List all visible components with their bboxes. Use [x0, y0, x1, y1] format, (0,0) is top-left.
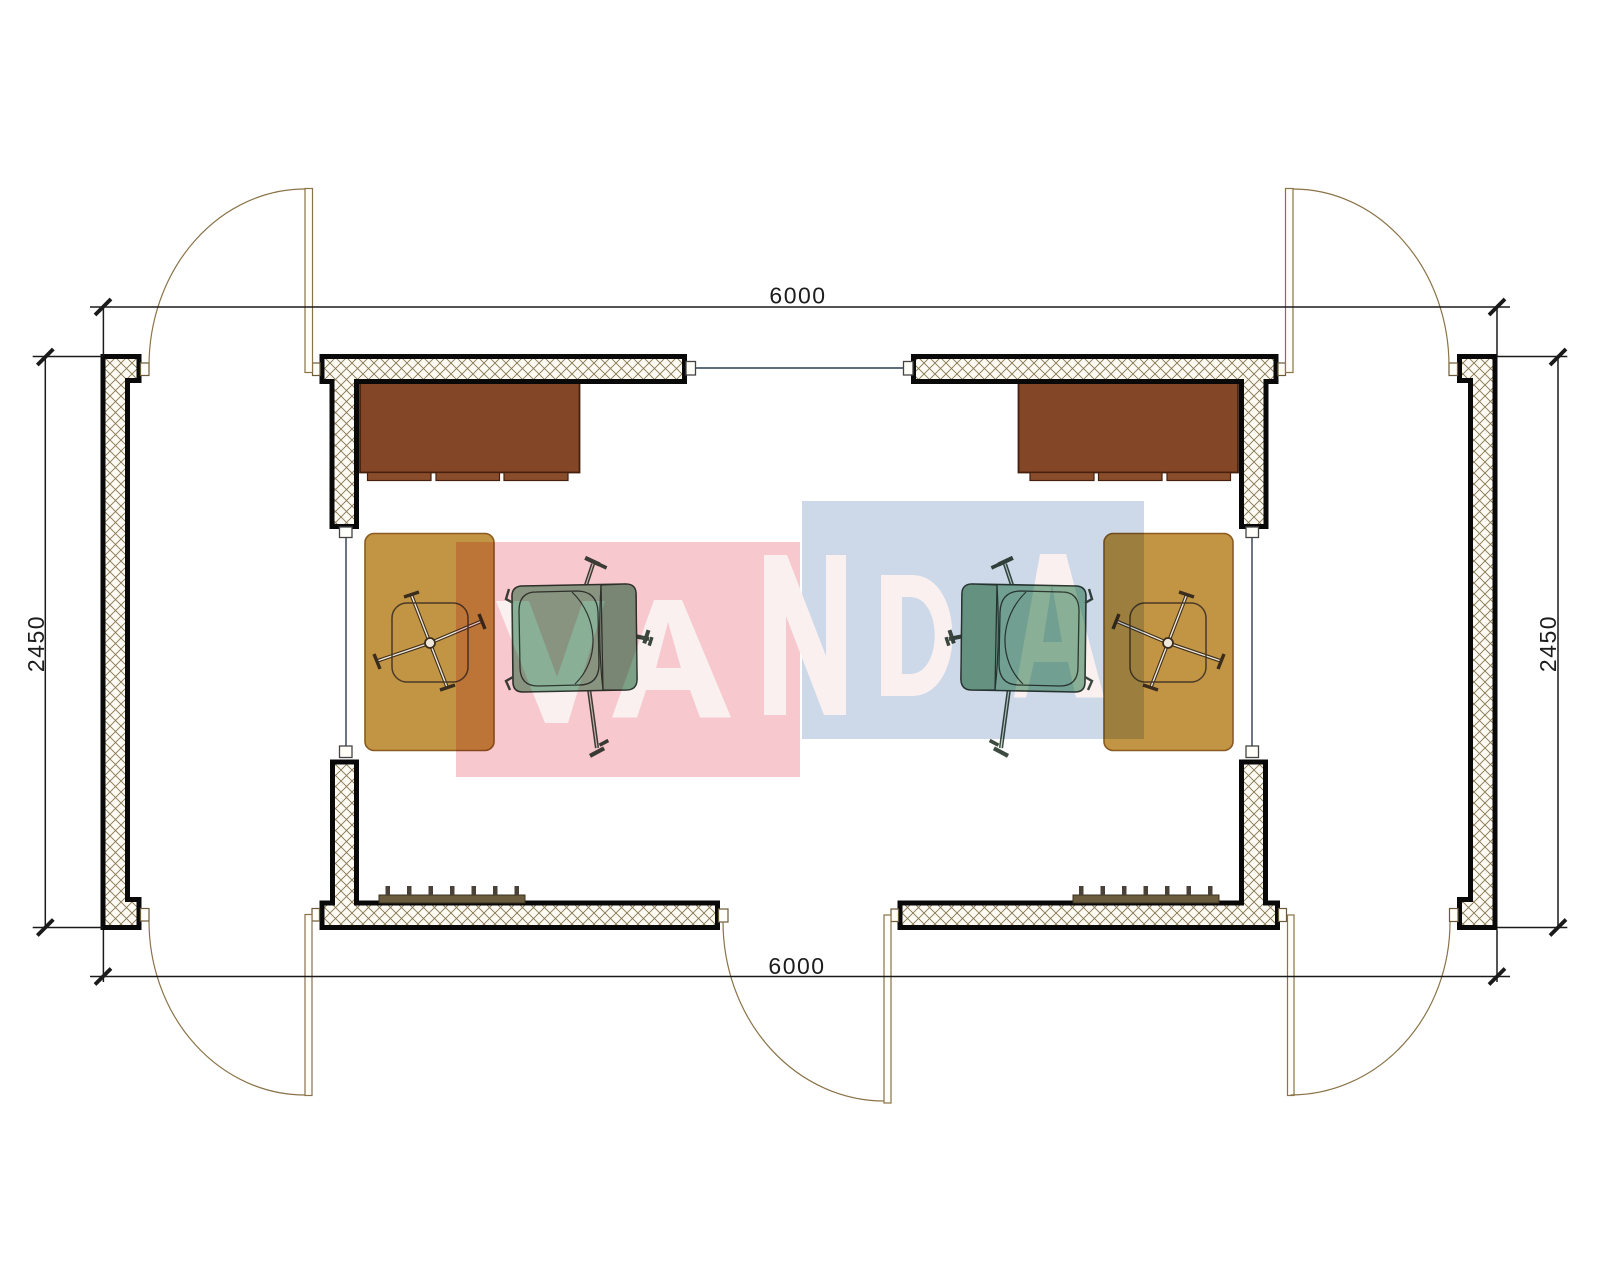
svg-text:2450: 2450	[1535, 615, 1561, 672]
svg-text:6000: 6000	[768, 953, 825, 979]
svg-text:6000: 6000	[769, 283, 826, 309]
svg-text:2450: 2450	[23, 615, 49, 672]
